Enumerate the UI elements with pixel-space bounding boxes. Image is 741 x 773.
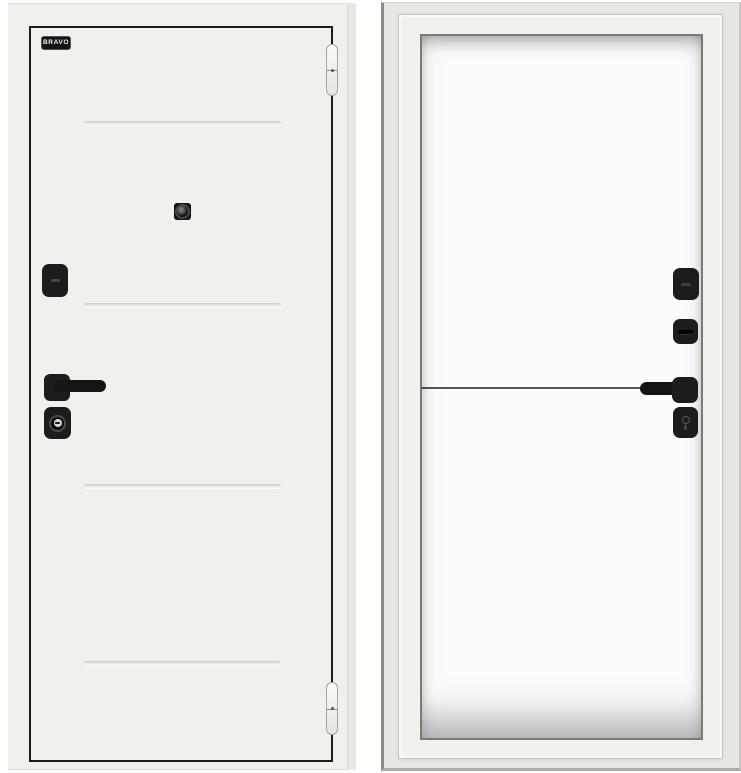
thumbturn — [673, 319, 698, 344]
lock-cover-interior — [673, 268, 699, 300]
decorative-line — [421, 387, 641, 389]
keyhole-tail — [684, 423, 687, 430]
product-image: BRAVO — [0, 0, 741, 773]
lock-slot-interior — [681, 283, 691, 286]
thumbturn-bar — [678, 330, 693, 334]
keyhole-escutcheon — [673, 407, 698, 438]
interior-door-view — [0, 0, 741, 773]
keyhole-icon — [682, 416, 690, 424]
handle-rosette-interior — [672, 377, 698, 403]
